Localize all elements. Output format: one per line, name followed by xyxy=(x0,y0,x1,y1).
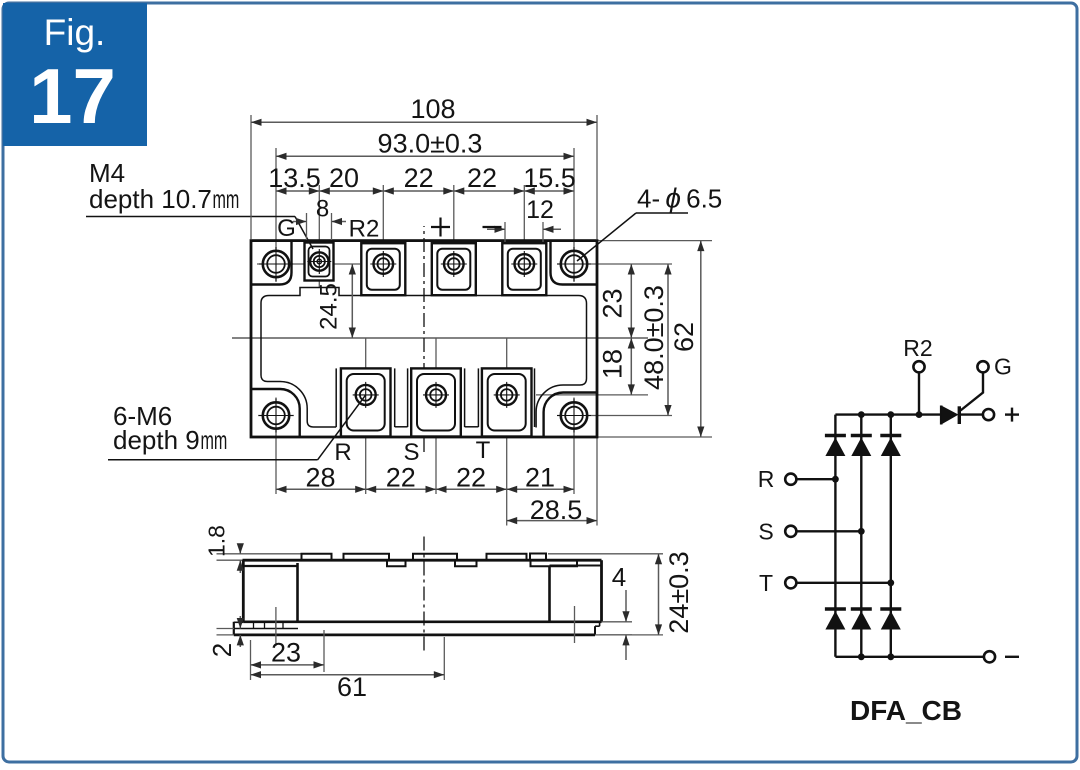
svg-text:23: 23 xyxy=(598,288,628,318)
svg-text:22: 22 xyxy=(467,163,497,193)
svg-text:17: 17 xyxy=(29,52,116,140)
svg-text:S: S xyxy=(758,518,773,544)
svg-text:18: 18 xyxy=(598,349,628,379)
svg-text:61: 61 xyxy=(337,672,367,702)
svg-text:R: R xyxy=(334,439,351,466)
svg-text:28: 28 xyxy=(305,463,335,493)
svg-text:depth 9: depth 9 xyxy=(113,425,200,455)
svg-text:8: 8 xyxy=(316,196,329,223)
svg-text:R2: R2 xyxy=(349,216,380,243)
svg-text:24±0.3: 24±0.3 xyxy=(664,551,694,633)
svg-text:21: 21 xyxy=(525,463,555,493)
svg-text:108: 108 xyxy=(410,94,455,124)
svg-text:22: 22 xyxy=(386,463,416,493)
svg-text:13.5: 13.5 xyxy=(268,163,321,193)
svg-text:24.5: 24.5 xyxy=(316,283,343,330)
svg-text:Fig.: Fig. xyxy=(44,12,106,53)
svg-text:DFA_CB: DFA_CB xyxy=(850,695,962,726)
svg-text:23: 23 xyxy=(271,638,301,668)
svg-text:1.8: 1.8 xyxy=(204,525,230,557)
svg-text:20: 20 xyxy=(329,163,359,193)
svg-text:22: 22 xyxy=(456,463,486,493)
svg-text:R: R xyxy=(758,466,775,492)
svg-text:93.0±0.3: 93.0±0.3 xyxy=(378,129,483,159)
svg-text:depth 10.7: depth 10.7 xyxy=(89,184,214,214)
svg-text:T: T xyxy=(759,570,773,596)
svg-text:G: G xyxy=(277,215,296,242)
svg-text:15.5: 15.5 xyxy=(523,163,576,193)
svg-text:48.0±0.3: 48.0±0.3 xyxy=(639,285,669,390)
svg-text:G: G xyxy=(994,354,1012,380)
svg-text:2: 2 xyxy=(207,643,237,657)
svg-text:28.5: 28.5 xyxy=(530,495,583,525)
svg-text:22: 22 xyxy=(404,163,434,193)
svg-text:S: S xyxy=(403,439,419,466)
svg-text:mm: mm xyxy=(213,184,240,214)
svg-text:T: T xyxy=(476,437,491,464)
svg-text:4- ϕ 6.5: 4- ϕ 6.5 xyxy=(637,183,722,214)
svg-text:62: 62 xyxy=(669,322,699,352)
svg-text:12: 12 xyxy=(526,196,554,224)
svg-text:mm: mm xyxy=(201,425,228,455)
svg-text:R2: R2 xyxy=(903,335,932,361)
svg-text:4: 4 xyxy=(612,562,626,592)
